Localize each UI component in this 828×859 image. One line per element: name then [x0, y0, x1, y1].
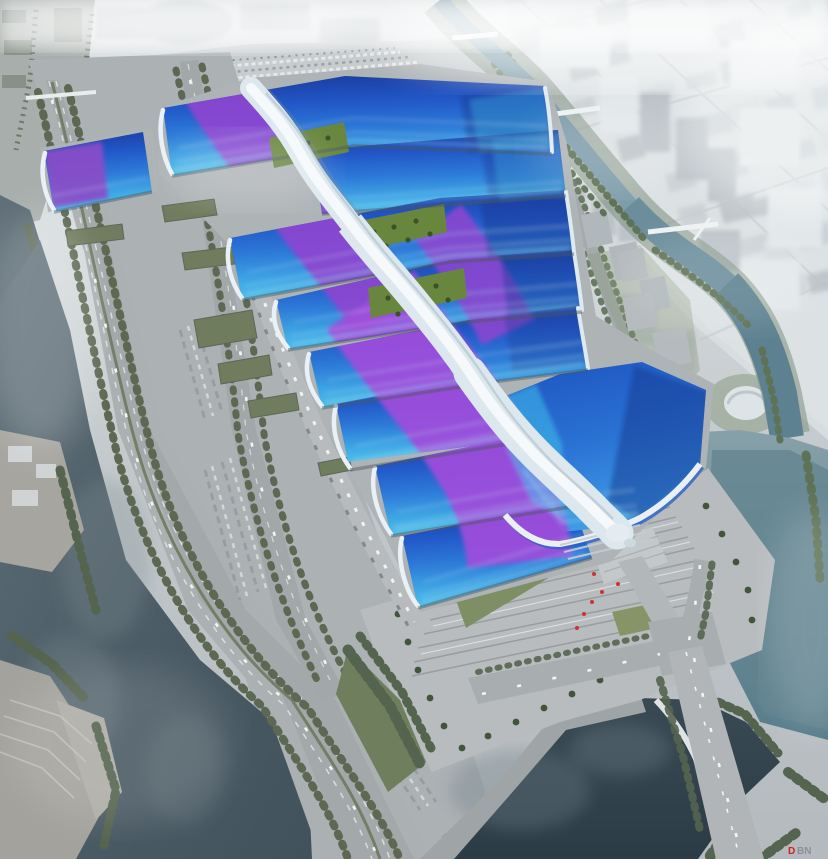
- svg-text:D: D: [788, 846, 795, 857]
- svg-text:BN: BN: [797, 846, 811, 857]
